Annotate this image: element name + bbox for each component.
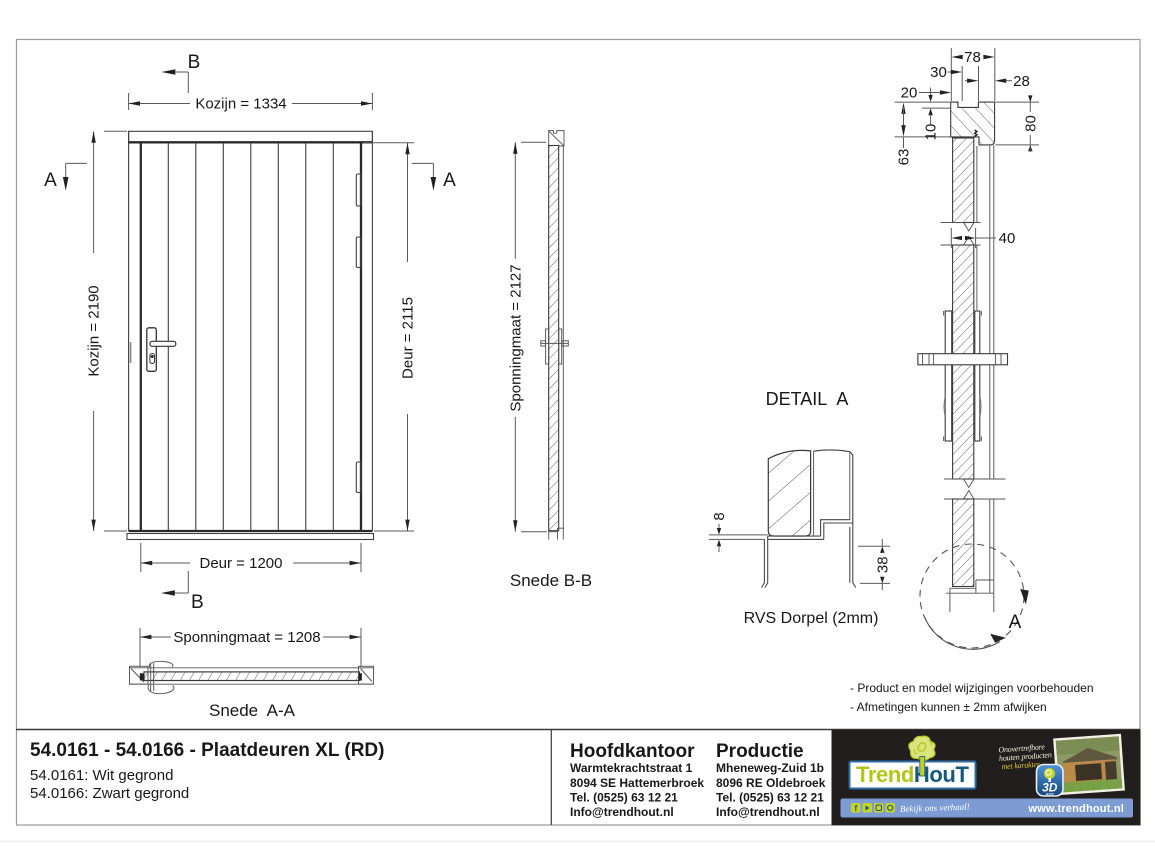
svg-text:8096 RE Oldebroek: 8096 RE Oldebroek — [716, 776, 826, 790]
svg-text:Sponningmaat = 2127: Sponningmaat = 2127 — [507, 264, 524, 411]
svg-text:Mheneweg-Zuid 1b: Mheneweg-Zuid 1b — [716, 761, 824, 775]
svg-text:A: A — [44, 170, 57, 191]
svg-text:8: 8 — [711, 512, 728, 520]
svg-text:f: f — [854, 804, 857, 813]
svg-text:20: 20 — [901, 85, 918, 102]
svg-text:- Product en model wijzigingen: - Product en model wijzigingen voorbehou… — [850, 681, 1094, 695]
svg-text:Snede B-B: Snede B-B — [510, 571, 592, 590]
svg-text:10: 10 — [923, 124, 940, 141]
svg-text:www.trendhout.nl: www.trendhout.nl — [1027, 803, 1124, 815]
svg-text:Tel. (0525) 63 12 21: Tel. (0525) 63 12 21 — [570, 791, 678, 805]
svg-text:Tel. (0525) 63 12 21: Tel. (0525) 63 12 21 — [716, 791, 824, 805]
svg-text:Info@trendhout.nl: Info@trendhout.nl — [716, 805, 820, 819]
svg-text:54.0166: Zwart gegrond: 54.0166: Zwart gegrond — [30, 785, 189, 802]
svg-text:78: 78 — [964, 49, 981, 66]
svg-text:Info@trendhout.nl: Info@trendhout.nl — [570, 805, 674, 819]
svg-text:Hoofdkantoor: Hoofdkantoor — [570, 741, 695, 762]
svg-text:Deur = 2115: Deur = 2115 — [400, 297, 417, 379]
svg-text:Productie: Productie — [716, 741, 804, 762]
svg-text:- Afmetingen kunnen ± 2mm afwi: - Afmetingen kunnen ± 2mm afwijken — [850, 700, 1047, 714]
svg-text:Kozijn = 1334: Kozijn = 1334 — [195, 96, 286, 113]
svg-text:38: 38 — [874, 556, 891, 573]
svg-text:28: 28 — [1013, 73, 1030, 90]
svg-text:RVS Dorpel (2mm): RVS Dorpel (2mm) — [744, 610, 879, 627]
svg-text:80: 80 — [1022, 115, 1039, 132]
svg-text:TrendHouT: TrendHouT — [856, 762, 969, 787]
svg-text:54.0161 - 54.0166 - Plaatdeure: 54.0161 - 54.0166 - Plaatdeuren XL (RD) — [30, 740, 384, 761]
svg-text:DETAIL A: DETAIL A — [766, 389, 849, 409]
svg-text:63: 63 — [896, 149, 913, 166]
svg-text:Sponningmaat = 1208: Sponningmaat = 1208 — [173, 629, 320, 646]
svg-text:Deur = 1200: Deur = 1200 — [200, 555, 283, 572]
svg-text:A: A — [1009, 612, 1022, 633]
svg-text:30: 30 — [930, 64, 947, 81]
svg-text:8094 SE Hattemerbroek: 8094 SE Hattemerbroek — [570, 776, 704, 790]
svg-text:A: A — [443, 170, 456, 191]
svg-text:B: B — [188, 52, 201, 73]
svg-text:B: B — [191, 592, 204, 613]
svg-text:Warmtekrachtstraat 1: Warmtekrachtstraat 1 — [570, 761, 693, 775]
svg-text:40: 40 — [999, 230, 1016, 247]
svg-text:Snede A-A: Snede A-A — [209, 701, 296, 720]
svg-text:54.0161: Wit gegrond: 54.0161: Wit gegrond — [30, 767, 173, 784]
svg-text:APP: APP — [1046, 792, 1055, 797]
svg-text:Kozijn = 2190: Kozijn = 2190 — [86, 285, 103, 376]
